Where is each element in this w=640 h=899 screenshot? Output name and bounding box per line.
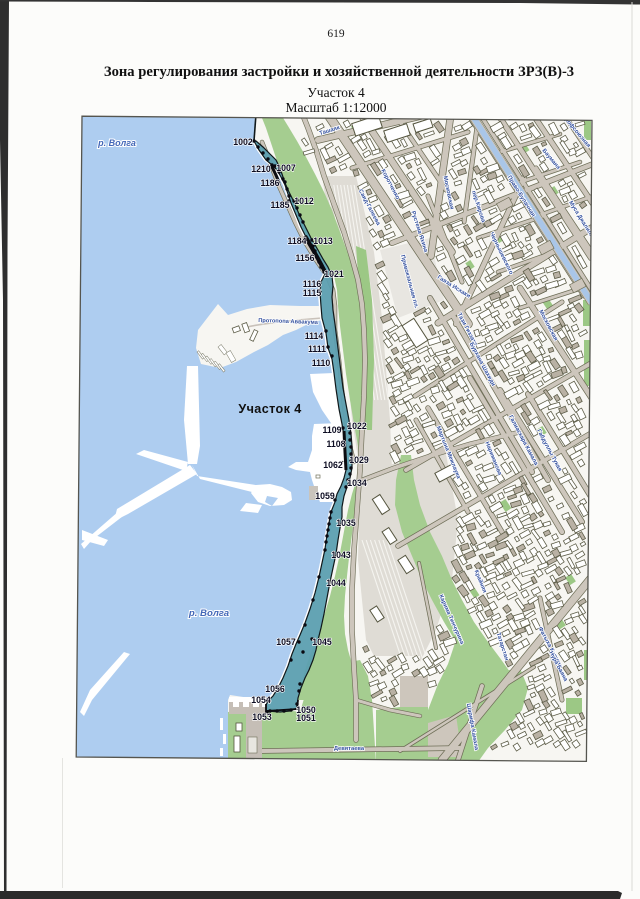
- svg-text:1210: 1210: [251, 164, 271, 174]
- svg-text:1022: 1022: [347, 421, 367, 431]
- svg-text:1057: 1057: [276, 637, 296, 647]
- svg-text:р. Волга: р. Волга: [97, 138, 136, 148]
- svg-text:1156: 1156: [295, 253, 314, 263]
- svg-text:1108: 1108: [326, 439, 345, 449]
- svg-text:Участок 4: Участок 4: [238, 402, 301, 416]
- svg-text:1012: 1012: [294, 196, 314, 206]
- svg-text:1056: 1056: [265, 684, 285, 694]
- svg-text:1184: 1184: [287, 236, 306, 246]
- svg-text:1053: 1053: [252, 712, 272, 722]
- svg-text:Зона регулирования застройки и: Зона регулирования застройки и хозяйстве…: [104, 64, 574, 80]
- svg-text:1115: 1115: [303, 288, 322, 298]
- svg-text:р. Волга: р. Волга: [188, 608, 230, 619]
- svg-text:Участок 4: Участок 4: [307, 85, 365, 100]
- svg-text:1043: 1043: [331, 550, 351, 560]
- svg-text:1062: 1062: [323, 460, 343, 470]
- svg-text:1002: 1002: [233, 137, 253, 147]
- svg-text:1007: 1007: [276, 163, 296, 173]
- svg-text:1035: 1035: [336, 518, 356, 528]
- svg-text:Девятаева: Девятаева: [334, 746, 365, 752]
- svg-text:1051: 1051: [296, 713, 316, 723]
- svg-text:1044: 1044: [326, 578, 346, 588]
- svg-text:1109: 1109: [322, 425, 341, 435]
- svg-text:1029: 1029: [349, 455, 369, 465]
- svg-text:1054: 1054: [251, 695, 271, 705]
- svg-text:1059: 1059: [315, 491, 335, 501]
- svg-text:1186: 1186: [260, 178, 279, 188]
- svg-text:Масштаб 1:12000: Масштаб 1:12000: [286, 100, 387, 115]
- svg-text:1111: 1111: [308, 344, 326, 354]
- svg-text:1034: 1034: [347, 478, 367, 488]
- svg-text:1045: 1045: [312, 637, 332, 647]
- svg-text:619: 619: [327, 28, 345, 40]
- svg-text:1021: 1021: [324, 269, 344, 279]
- svg-text:1013: 1013: [313, 236, 333, 246]
- svg-text:1185: 1185: [270, 200, 289, 210]
- svg-text:1114: 1114: [305, 331, 324, 341]
- svg-text:1110: 1110: [312, 358, 331, 368]
